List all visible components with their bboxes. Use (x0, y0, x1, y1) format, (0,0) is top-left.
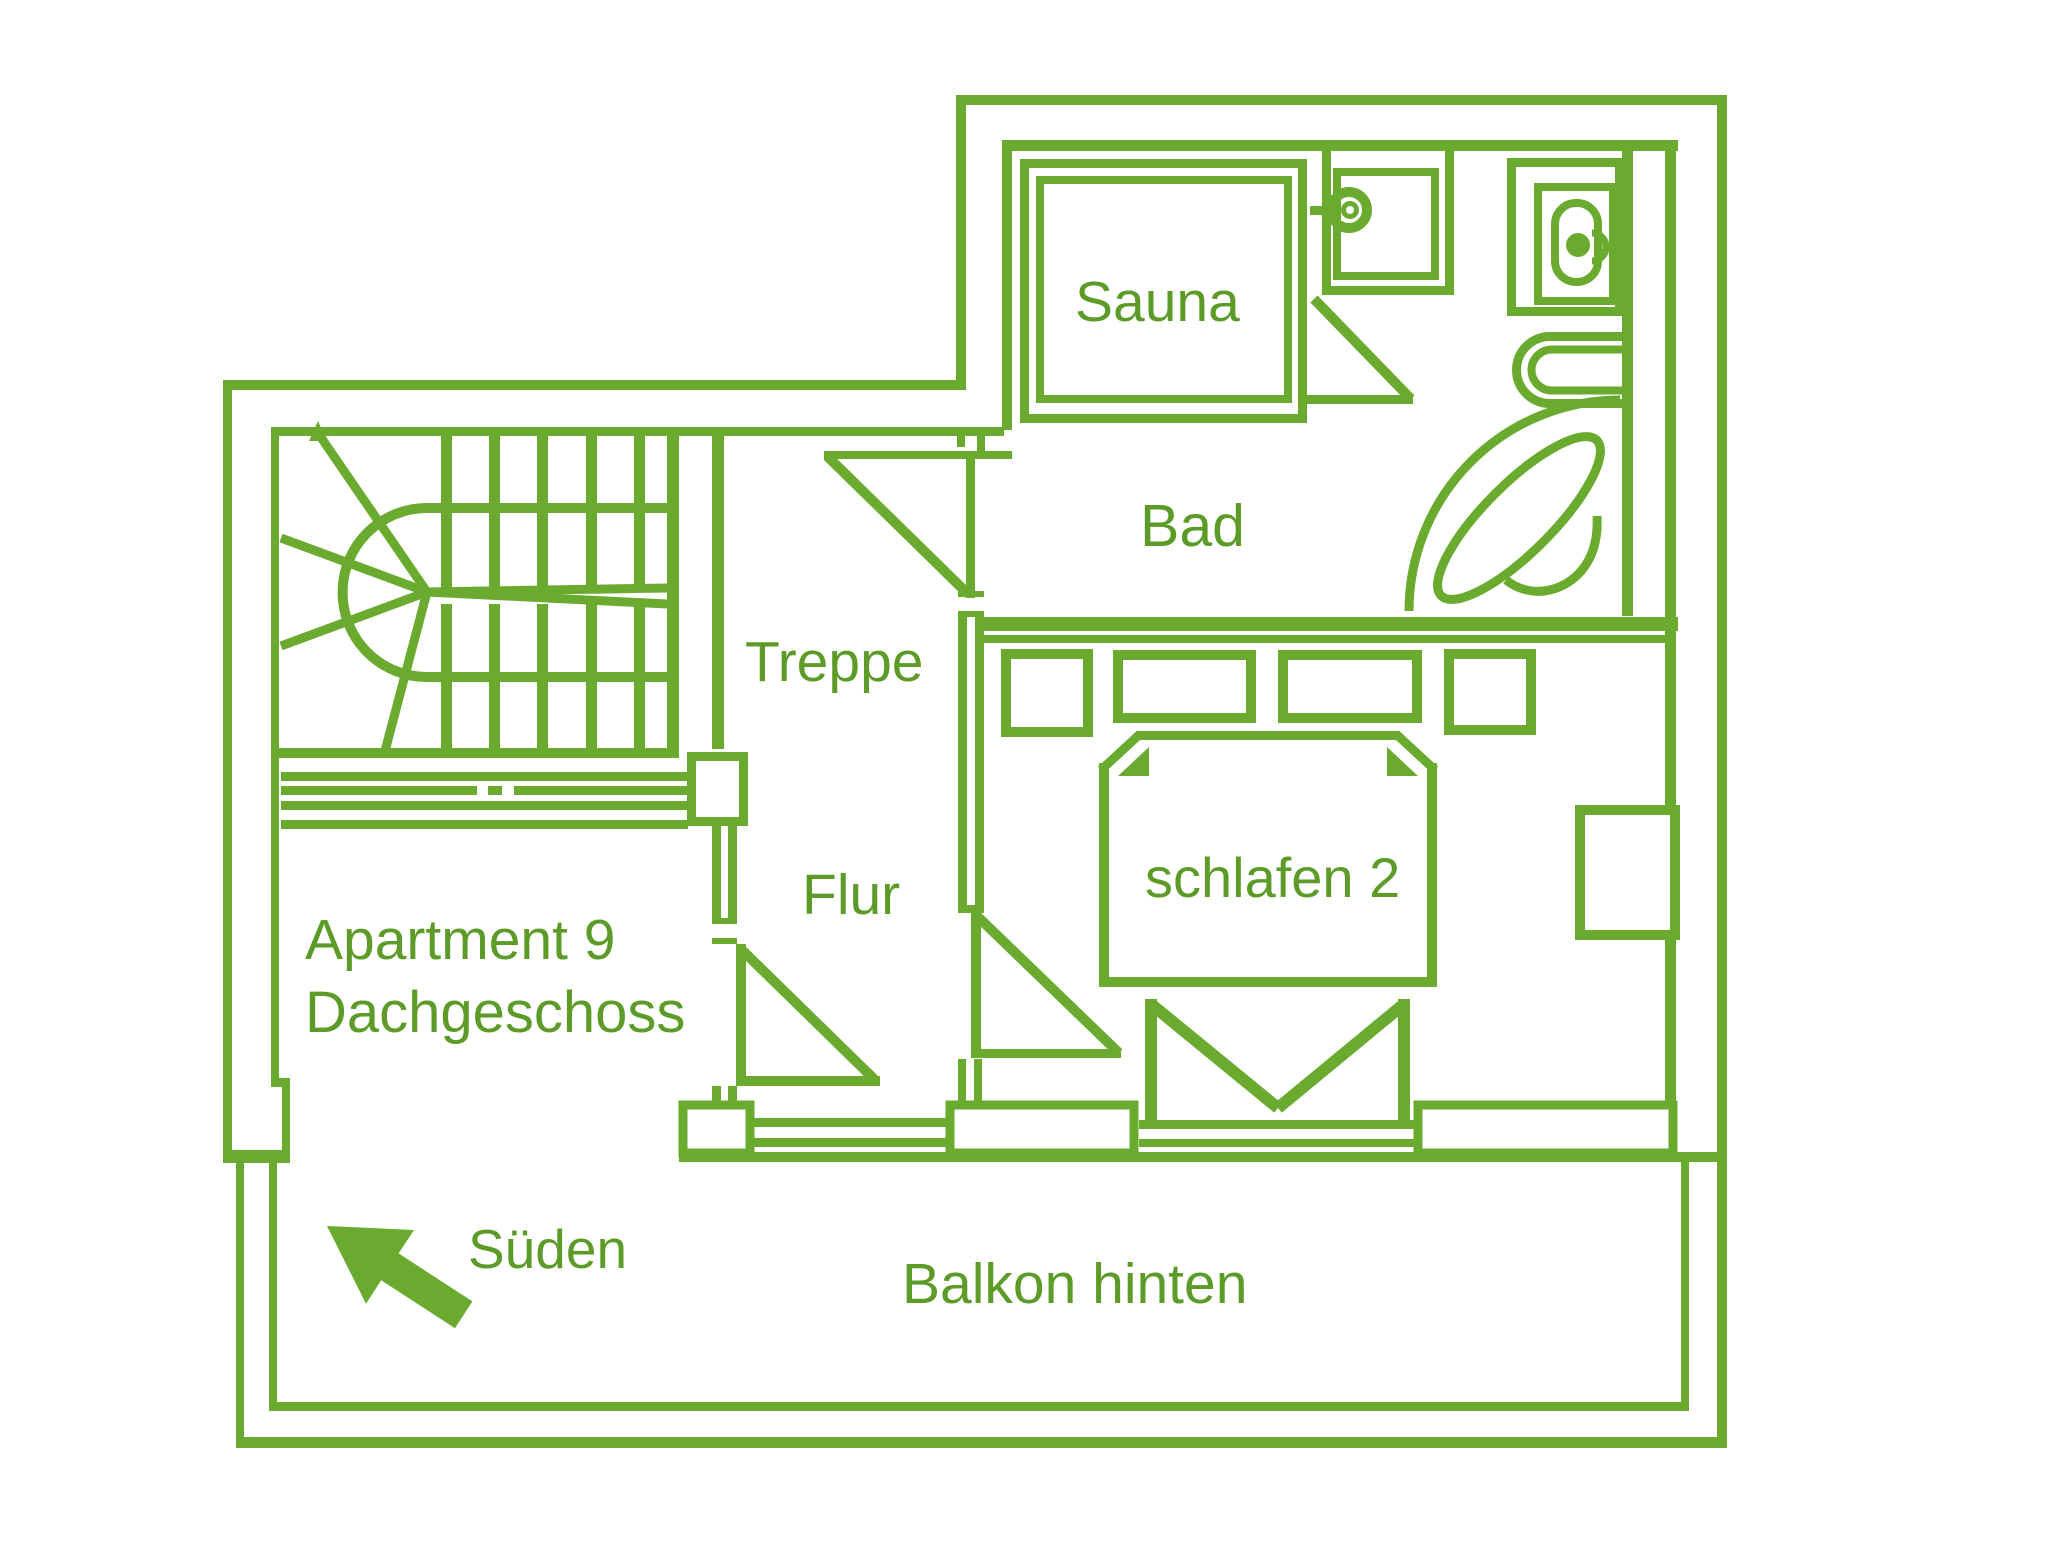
svg-text:Flur: Flur (802, 863, 900, 927)
svg-text:schlafen 2: schlafen 2 (1145, 846, 1400, 909)
svg-text:Bad: Bad (1140, 493, 1245, 559)
svg-text:Apartment 9: Apartment 9 (305, 908, 616, 972)
svg-text:Treppe: Treppe (745, 630, 924, 694)
svg-text:Dachgeschoss: Dachgeschoss (305, 980, 685, 1045)
svg-text:Balkon hinten: Balkon hinten (902, 1252, 1247, 1316)
svg-text:Süden: Süden (468, 1218, 627, 1280)
svg-text:Sauna: Sauna (1075, 270, 1240, 334)
